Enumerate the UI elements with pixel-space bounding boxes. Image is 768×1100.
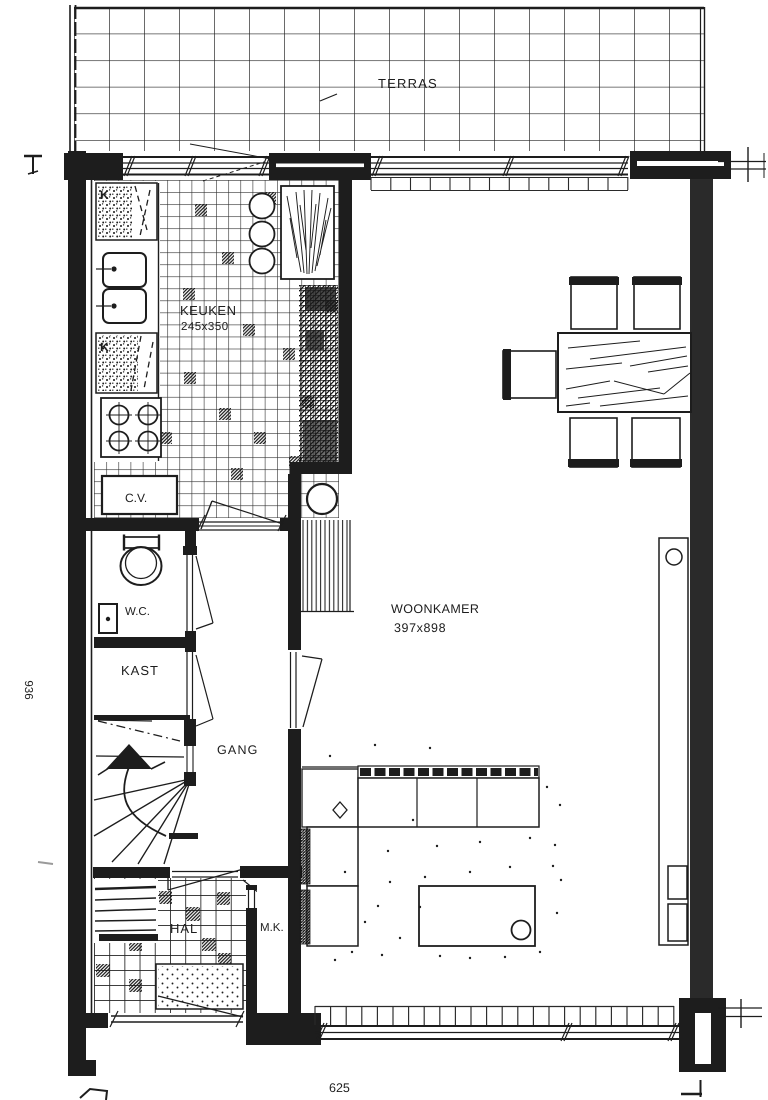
svg-text:C.V.: C.V. — [125, 491, 147, 505]
svg-text:K: K — [100, 188, 109, 202]
svg-text:HAL: HAL — [170, 921, 198, 936]
svg-text:KAST: KAST — [121, 663, 159, 678]
svg-text:397x898: 397x898 — [394, 621, 446, 635]
svg-text:245x350: 245x350 — [181, 321, 229, 333]
svg-text:TERRAS: TERRAS — [378, 76, 438, 91]
svg-text:GANG: GANG — [217, 743, 259, 757]
svg-text:K: K — [100, 340, 109, 354]
svg-text:WOONKAMER: WOONKAMER — [391, 602, 479, 616]
svg-text:936: 936 — [22, 680, 34, 699]
svg-text:W.C.: W.C. — [125, 606, 150, 618]
svg-text:M.K.: M.K. — [260, 922, 284, 934]
svg-text:KEUKEN: KEUKEN — [180, 303, 236, 318]
svg-text:625: 625 — [329, 1081, 350, 1095]
